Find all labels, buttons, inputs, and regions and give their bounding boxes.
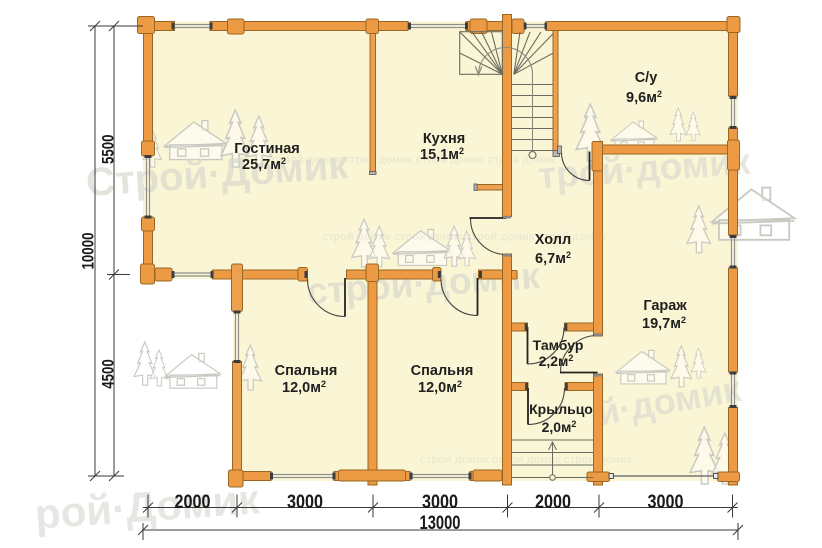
svg-text:3000: 3000	[648, 492, 684, 513]
svg-text:12,0м2: 12,0м2	[282, 379, 326, 396]
svg-text:Кухня: Кухня	[423, 131, 465, 147]
svg-text:строй домик строй домик стро: строй домик строй домик строй домик стро…	[272, 154, 557, 166]
svg-text:9,6м2: 9,6м2	[626, 89, 662, 106]
svg-text:Спальня: Спальня	[411, 363, 474, 379]
svg-text:2,2м2: 2,2м2	[539, 353, 574, 369]
svg-text:6,7м2: 6,7м2	[535, 250, 571, 267]
svg-text:Холл: Холл	[535, 232, 571, 248]
svg-text:Тамбур: Тамбур	[533, 337, 584, 353]
svg-text:2,0м2: 2,0м2	[542, 419, 577, 435]
svg-text:3000: 3000	[422, 492, 458, 513]
svg-text:5500: 5500	[99, 135, 118, 165]
svg-text:Спальня: Спальня	[275, 363, 338, 379]
svg-text:Гостиная: Гостиная	[234, 141, 300, 157]
svg-text:19,7м2: 19,7м2	[642, 315, 686, 332]
svg-text:Крыльцо: Крыльцо	[529, 401, 593, 417]
svg-text:Гараж: Гараж	[643, 298, 687, 314]
svg-text:10000: 10000	[79, 233, 98, 270]
svg-text:С/у: С/у	[635, 70, 658, 86]
svg-text:4500: 4500	[99, 359, 118, 389]
svg-text:13000: 13000	[420, 513, 461, 534]
svg-text:2000: 2000	[175, 492, 211, 513]
svg-text:15,1м2: 15,1м2	[420, 146, 464, 163]
svg-text:12,0м2: 12,0м2	[418, 379, 462, 396]
svg-text:2000: 2000	[535, 492, 571, 513]
svg-text:3000: 3000	[287, 492, 323, 513]
svg-text:25,7м2: 25,7м2	[242, 156, 286, 173]
